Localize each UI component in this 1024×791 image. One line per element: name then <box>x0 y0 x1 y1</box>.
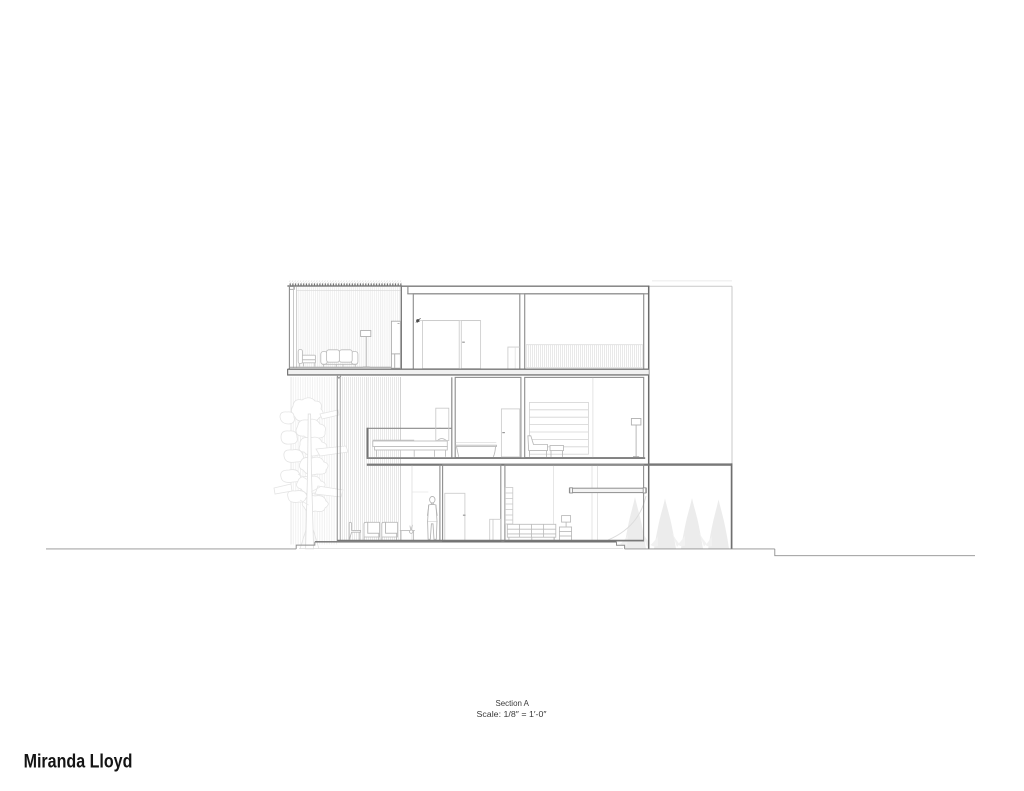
svg-text:Scale: 1/8″ = 1′-0″: Scale: 1/8″ = 1′-0″ <box>477 709 547 719</box>
svg-text:Section A: Section A <box>495 698 529 708</box>
svg-text:Miranda Lloyd: Miranda Lloyd <box>24 752 133 773</box>
